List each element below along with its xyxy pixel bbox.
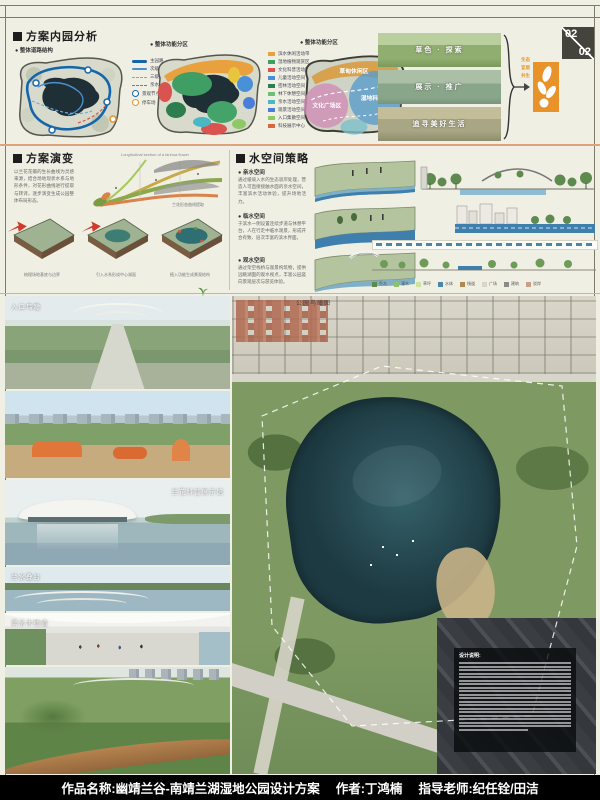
legend-parking-icon xyxy=(132,99,139,106)
footer-bar: 作品名称:幽靖兰谷-南靖兰湖湿地公园设计方案 作者:丁鸿楠 指导老师:纪任铨/田… xyxy=(0,775,600,800)
legend-swatch-icon xyxy=(268,100,275,104)
advisor-name: 纪任铨/田洁 xyxy=(473,782,539,796)
advisor-label: 指导老师: xyxy=(418,782,472,796)
entrance-path xyxy=(91,324,145,389)
play-structure-2 xyxy=(113,447,147,459)
evolution-title-row: 方案演变 xyxy=(13,150,74,166)
legend-chip: 灌木 xyxy=(394,281,409,287)
legend-swatch-icon xyxy=(268,84,275,88)
evolution-intro: 以兰花花瓣的生长曲线为灵感来源，结合场地现状水系与地形条件，对花形曲线进行提取与… xyxy=(14,168,74,204)
legend-swatch-icon xyxy=(268,76,275,80)
city-section-drawing xyxy=(455,202,595,236)
footer-author: 作者:丁鸿楠 xyxy=(336,778,403,797)
legend-chip: 广场 xyxy=(482,281,497,287)
poster-board: 方案内园分析 ● 整体道路结构 主园路 次级园路 三级园路 亲水栈道 景观节点 … xyxy=(0,0,600,800)
arrow-right-icon xyxy=(514,82,530,92)
water-item-label: ● 观水空间 xyxy=(238,256,265,264)
trees-strip xyxy=(372,252,596,276)
photo-boardwalk xyxy=(5,667,230,774)
people-dots xyxy=(73,642,163,652)
legend-chip: 建筑 xyxy=(504,281,519,287)
legend-swatch-icon xyxy=(268,60,275,64)
shell-glass-band xyxy=(28,517,127,521)
title-square-icon xyxy=(13,154,22,163)
concept-caption: 展示 · 推广 xyxy=(378,82,501,92)
function-zoning-plan xyxy=(146,48,266,142)
photo-water-terrace: 兰水叠台 xyxy=(5,567,230,611)
legend-chip: 水体 xyxy=(438,281,453,287)
entrance-canopy-2 xyxy=(91,311,150,327)
title-square-icon xyxy=(236,154,245,163)
chip-swatch-icon xyxy=(372,282,377,287)
legend-dash-icon xyxy=(132,85,147,86)
photo-caption: 兰水叠台 xyxy=(11,571,41,581)
road-structure-plan xyxy=(8,53,128,143)
chip-swatch-icon xyxy=(504,282,509,287)
water-title: 水空间策略 xyxy=(249,150,309,166)
chip-label: 栈道 xyxy=(467,281,475,287)
chip-label: 广场 xyxy=(489,281,497,287)
photo-entrance-aerial: 入口鸟瞰 xyxy=(5,296,230,389)
page-current: 02 xyxy=(565,28,577,40)
legend-chip: 乔木 xyxy=(372,281,387,287)
concept-photo-life: 追寻美好生活 xyxy=(378,107,501,141)
chip-swatch-icon xyxy=(438,282,443,287)
section-divider-gray xyxy=(0,293,600,294)
park-section-drawing xyxy=(420,149,596,199)
design-note-panel: 设计说明: xyxy=(454,648,576,752)
design-note-lines xyxy=(459,662,571,731)
section-legend-row: 乔木 灌木 草坪 水体 栈道 广场 建筑 驳岸 xyxy=(372,281,541,287)
tagline-line: 共生 xyxy=(508,72,530,80)
step-caption: 植入功能生成景观结构 xyxy=(156,272,224,278)
orchid-logo-icon xyxy=(533,62,559,112)
footer-advisor: 指导老师:纪任铨/田洁 xyxy=(418,778,538,797)
section-divider-salmon xyxy=(0,144,600,146)
concept-photo-meadow: 草色 · 探索 xyxy=(378,33,501,67)
legend-swatch-icon xyxy=(268,52,275,56)
legend-chip: 栈道 xyxy=(460,281,475,287)
legend-swatch-icon xyxy=(268,108,275,112)
play-structure-3 xyxy=(172,439,190,461)
waterline-strip xyxy=(372,240,598,250)
zone-diagram-caption: ● 整体功能分区 xyxy=(300,38,338,46)
project-name: 幽靖兰谷-南靖兰湖湿地公园设计方案 xyxy=(116,782,320,796)
frame-top-line-2 xyxy=(0,17,600,18)
concept-caption: 草色 · 探索 xyxy=(378,45,501,55)
water-item-text: 通过架空栈桥与观景构筑物，提供远眺湖面的观水视点，丰富公园竖向景观层次与游览体验… xyxy=(238,264,306,286)
chip-label: 乔木 xyxy=(379,281,387,287)
design-note-title: 设计说明: xyxy=(459,652,571,659)
photo-under-bridge: 滨水木栈道 xyxy=(5,613,230,665)
photo-caption: 滨水木栈道 xyxy=(11,617,49,627)
legend-line-icon xyxy=(132,68,147,70)
function-diagram-caption: ● 整体功能分区 xyxy=(150,40,188,48)
chip-label: 灌木 xyxy=(401,281,409,287)
tagline-line: 生态 xyxy=(508,56,530,64)
form-sketch-diagram xyxy=(150,152,224,200)
water-reflection xyxy=(37,524,118,550)
aerial-caption: 公园鸟瞰图 xyxy=(296,298,331,307)
chip-swatch-icon xyxy=(460,282,465,287)
city-skyline xyxy=(5,414,230,424)
analysis-title-row: 方案内园分析 xyxy=(13,28,98,44)
water-item-label: ● 临水空间 xyxy=(238,212,265,220)
evolution-title: 方案演变 xyxy=(26,150,74,166)
photo-caption: 入口鸟瞰 xyxy=(11,301,41,311)
analysis-title: 方案内园分析 xyxy=(26,28,98,44)
step-caption: 引入水系形成中心湖面 xyxy=(82,272,150,278)
legend-swatch-icon xyxy=(268,124,275,128)
legend-line-icon xyxy=(132,60,147,63)
step-caption: 梳理场地基底与边界 xyxy=(8,272,76,278)
page-indicator: 02 02 xyxy=(562,27,594,59)
side-water xyxy=(199,632,231,665)
chip-label: 建筑 xyxy=(511,281,519,287)
chip-label: 水体 xyxy=(445,281,453,287)
legend-node-icon xyxy=(132,90,139,97)
legend-chip: 驳岸 xyxy=(526,281,541,287)
title-square-icon xyxy=(13,32,22,41)
photo-science-hall: 兰花科普展示馆 xyxy=(5,480,230,565)
water-item-text: 通过缓坡入水的生态驳岸处理，营造人可直接接触水面的亲水空间，丰富滨水活动体验，提… xyxy=(238,176,306,205)
evolution-step-3 xyxy=(154,208,226,270)
legend-swatch-icon xyxy=(268,116,275,120)
tagline-line: 宜居 xyxy=(508,64,530,72)
legend-swatch-icon xyxy=(268,68,275,72)
author-name: 丁鸿楠 xyxy=(365,782,403,796)
foliage-blob xyxy=(19,699,87,735)
green-bank xyxy=(145,514,231,524)
water-item-text: 于滨水一侧设置连续步道与休憩平台，人在行走中临水观景，形成开合有致、层次丰富的滨… xyxy=(238,220,306,242)
frame-top-line-1 xyxy=(0,5,600,6)
evolution-step-2 xyxy=(80,208,152,270)
concept-photo-wetland: 展示 · 推广 xyxy=(378,70,501,104)
chip-swatch-icon xyxy=(416,282,421,287)
author-label: 作者: xyxy=(336,782,365,796)
aerial-rendering: 公园鸟瞰图 设计说明: xyxy=(232,296,596,774)
page-total: 02 xyxy=(579,46,591,58)
legend-dash-icon xyxy=(132,77,147,78)
water-title-row: 水空间策略 xyxy=(236,150,309,166)
evolution-step-1 xyxy=(6,208,78,270)
legend-chip: 草坪 xyxy=(416,281,431,287)
middle-vertical-divider xyxy=(229,150,230,290)
water-diagram-1 xyxy=(310,158,420,204)
photo-caption: 兰花科普展示馆 xyxy=(172,486,225,496)
concept-photo-strip: 草色 · 探索 展示 · 推广 追寻美好生活 xyxy=(378,33,501,144)
chip-swatch-icon xyxy=(394,282,399,287)
side-greenery xyxy=(5,629,46,665)
terrace-arc-2 xyxy=(37,598,127,610)
chip-label: 草坪 xyxy=(423,281,431,287)
chip-swatch-icon xyxy=(526,282,531,287)
bridge-arc xyxy=(73,678,195,694)
logo-tagline: 生态 宜居 共生 xyxy=(508,56,530,80)
footer-project: 作品名称:幽靖兰谷-南靖兰湖湿地公园设计方案 xyxy=(61,778,319,797)
photo-playground xyxy=(5,391,230,478)
chip-label: 驳岸 xyxy=(533,281,541,287)
project-label: 作品名称: xyxy=(61,782,115,796)
zone-label: 草甸休闲区 xyxy=(339,67,368,75)
water-item-label: ● 亲水空间 xyxy=(238,168,265,176)
concept-caption: 追寻美好生活 xyxy=(378,119,501,129)
legend-swatch-icon xyxy=(268,92,275,96)
play-structure xyxy=(32,441,82,457)
zone-label: 文化广场区 xyxy=(312,102,341,110)
chip-swatch-icon xyxy=(482,282,487,287)
